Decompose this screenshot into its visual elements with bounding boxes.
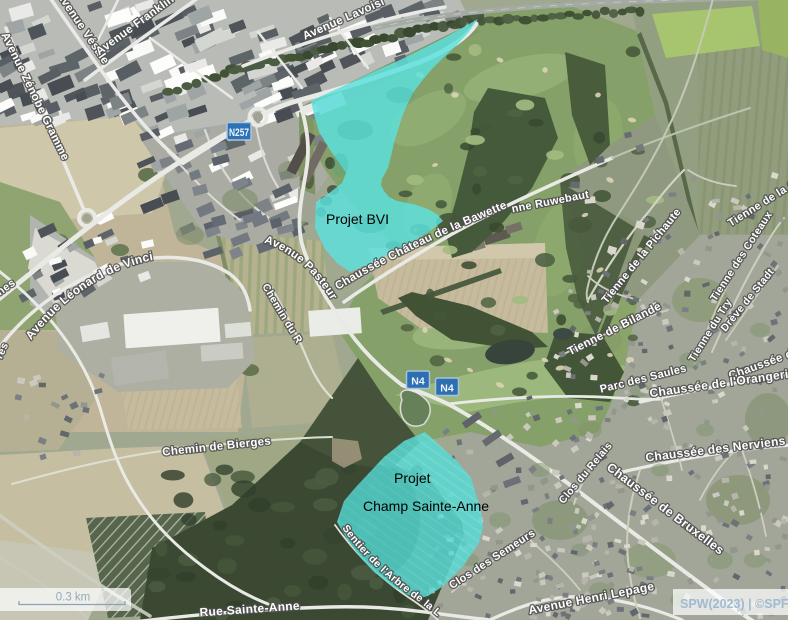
svg-text:SPW(2023) | ©SPF F: SPW(2023) | ©SPF F	[680, 597, 788, 611]
svg-text:Projet: Projet	[394, 470, 431, 486]
svg-text:Champ Sainte-Anne: Champ Sainte-Anne	[363, 498, 489, 514]
svg-text:N4: N4	[440, 383, 454, 395]
svg-text:N4: N4	[411, 376, 425, 388]
svg-text:0.3 km: 0.3 km	[56, 592, 91, 604]
svg-text:Projet BVI: Projet BVI	[326, 211, 389, 227]
svg-text:N257: N257	[229, 127, 249, 139]
